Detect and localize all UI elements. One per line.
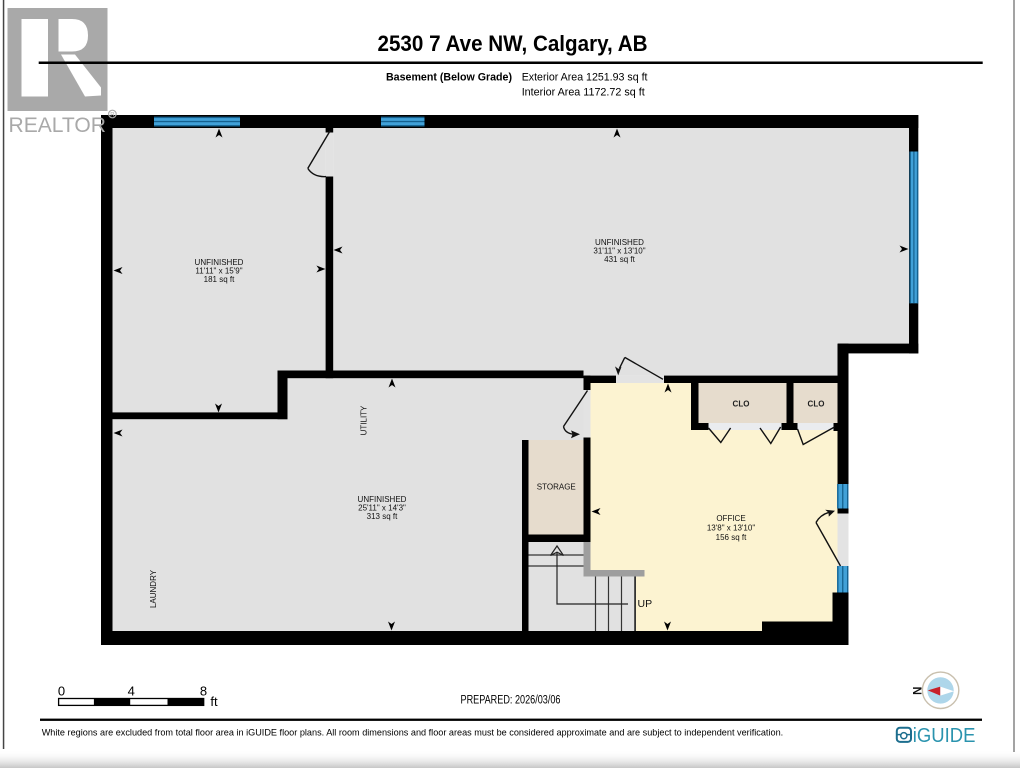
svg-text:313 sq ft: 313 sq ft [367,512,398,521]
svg-text:181 sq ft: 181 sq ft [204,275,235,284]
svg-text:Interior Area 1172.72 sq ft: Interior Area 1172.72 sq ft [522,87,646,99]
svg-text:STORAGE: STORAGE [537,483,576,492]
svg-text:White regions are excluded fro: White regions are excluded from total fl… [42,726,784,737]
svg-text:2530 7 Ave NW, Calgary, AB: 2530 7 Ave NW, Calgary, AB [378,31,648,56]
svg-text:PREPARED: 2026/03/06: PREPARED: 2026/03/06 [461,695,561,707]
svg-text:4: 4 [128,684,135,699]
svg-text:CLO: CLO [808,399,825,408]
svg-text:CLO: CLO [733,399,750,408]
svg-text:8: 8 [200,684,207,699]
svg-text:iGUIDE: iGUIDE [913,725,976,747]
svg-text:LAUNDRY: LAUNDRY [149,569,158,608]
svg-text:Exterior Area 1251.93 sq ft: Exterior Area 1251.93 sq ft [522,71,649,83]
svg-text:156 sq ft: 156 sq ft [716,533,747,542]
svg-text:UTILITY: UTILITY [360,405,369,435]
svg-text:0: 0 [58,684,65,699]
svg-text:REALTOR: REALTOR [9,113,107,137]
svg-text:OFFICE: OFFICE [716,514,745,523]
svg-text:13'8" x 13'10": 13'8" x 13'10" [707,524,755,533]
svg-text:431 sq ft: 431 sq ft [604,255,635,264]
svg-text:R: R [110,112,115,118]
svg-text:UP: UP [638,598,653,610]
svg-text:N: N [910,687,922,695]
svg-text:Basement (Below Grade): Basement (Below Grade) [386,71,512,83]
svg-text:ft: ft [210,694,218,709]
